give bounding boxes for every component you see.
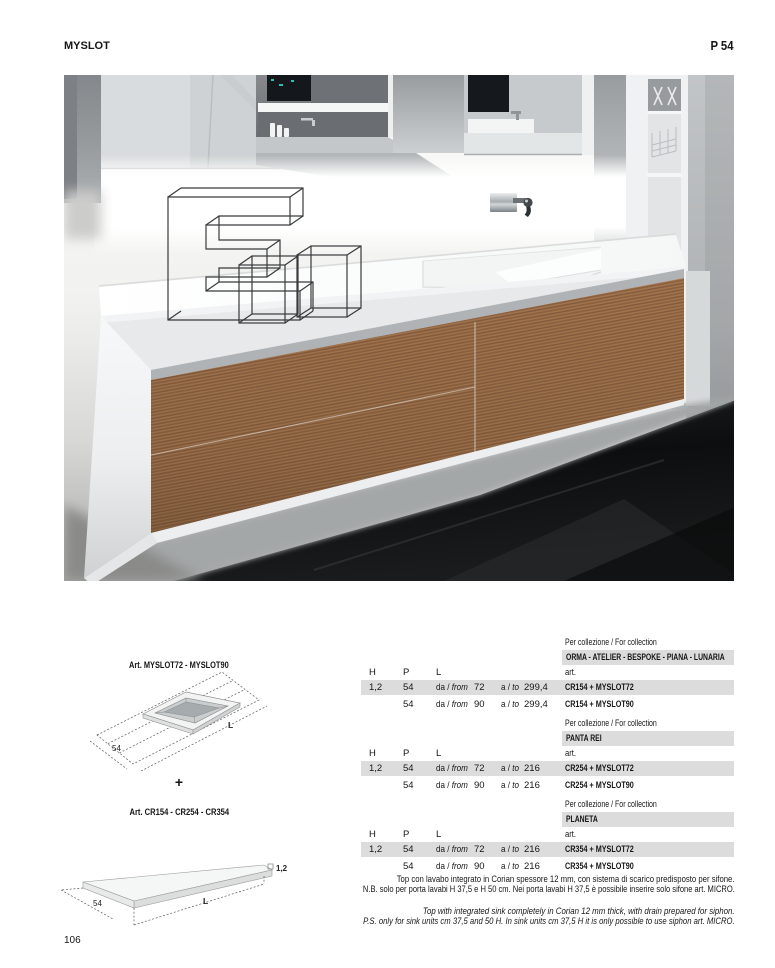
svg-text:L: L — [203, 896, 208, 906]
svg-text:L: L — [228, 720, 233, 730]
svg-text:54: 54 — [93, 899, 102, 908]
